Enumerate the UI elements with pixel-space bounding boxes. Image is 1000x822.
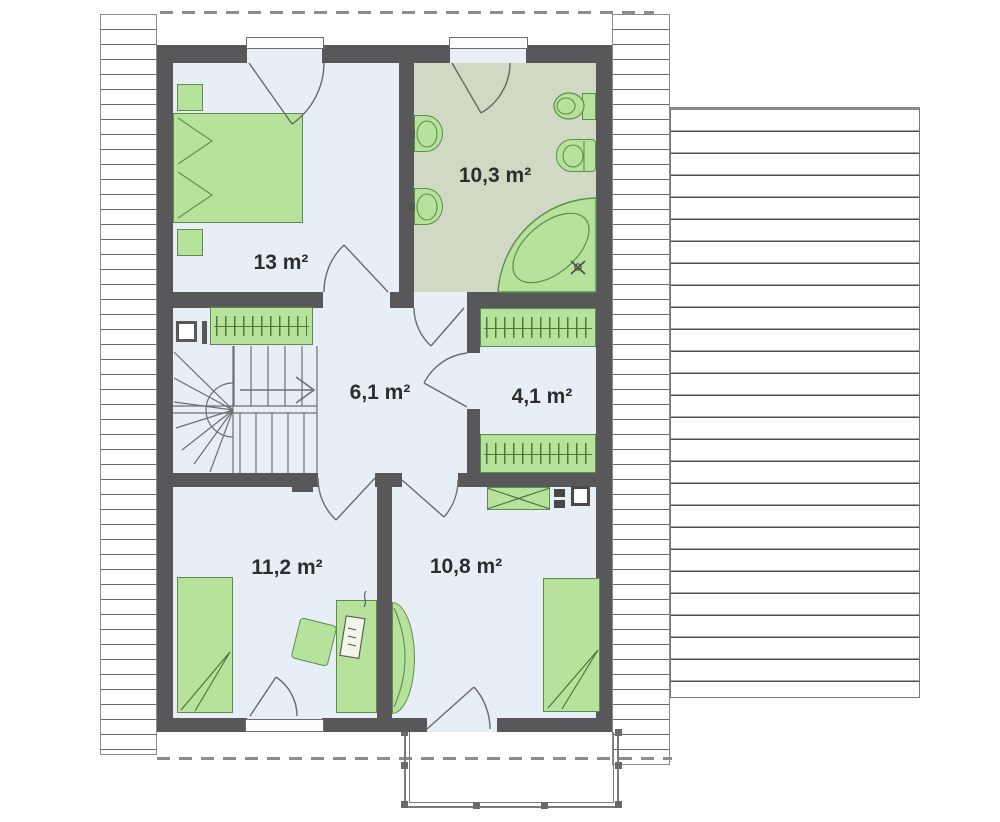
staircase [173,346,317,473]
room-label-hallway: 6,1 m² [350,381,411,405]
door-bedroom-hall [324,245,388,292]
door-room-right [402,480,458,517]
blanket-fold [181,652,230,711]
door-bathroom-hall [414,308,464,346]
room-label-bathroom: 10,3 m² [459,164,531,188]
washbasin-bowl [417,121,437,147]
cabinet-x-mark [487,488,550,509]
pillow-fold [178,118,212,164]
furniture-details [178,118,598,711]
toilet-bowl [554,93,584,119]
corner-bathtub [498,198,596,292]
room-label-bedroom-top: 13 m² [254,251,309,275]
room-label-closet: 4,1 m² [512,385,573,409]
door-bedroom-top [249,63,324,124]
room-label-room-right: 10,8 m² [430,555,502,579]
washbasin-bowl [417,194,437,220]
floor-plan: 13 m² 10,3 m² 6,1 m² 4,1 m² 11,2 m² 10,8… [0,0,1000,822]
desk-cable [364,591,366,607]
pillow-fold [178,172,212,218]
door-bathroom-top [452,63,510,113]
bidet-bowl [563,145,583,167]
door-balcony [427,687,490,729]
door-room-left [318,478,375,520]
stair-winders [174,352,233,472]
tap-icon [409,203,415,211]
room-label-room-left: 11,2 m² [251,556,322,580]
blanket-fold [548,650,598,709]
curved-cabinet-line [394,608,405,707]
door-room-left-window [250,677,297,716]
door-closet [424,353,467,407]
bathroom-fixture-details [409,93,602,296]
linework-overlay [0,0,1000,822]
tap-icon [409,130,415,138]
